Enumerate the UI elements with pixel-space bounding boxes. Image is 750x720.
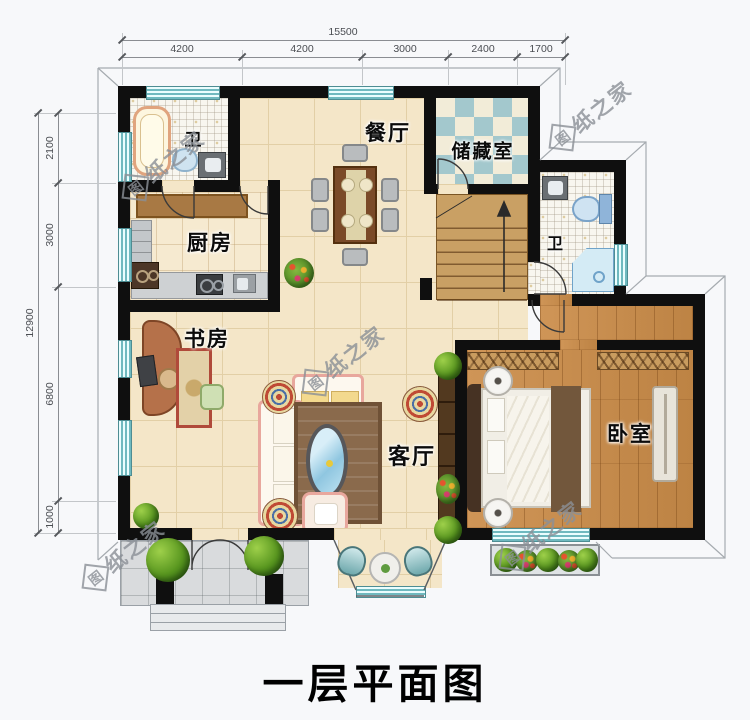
wall <box>228 86 240 192</box>
wall <box>455 340 560 350</box>
dining-chair <box>311 208 329 232</box>
dining-chair <box>342 248 368 266</box>
bench <box>652 386 678 482</box>
toilet2-tank <box>599 194 612 224</box>
sink-icon <box>233 274 256 293</box>
wall <box>693 294 705 540</box>
wall <box>420 278 432 300</box>
porch-pillar <box>265 574 283 604</box>
room-label-bedroom: 卧室 <box>607 418 653 448</box>
wall <box>268 180 280 312</box>
watermark-badge-icon: 图 <box>498 543 526 571</box>
tv-cabinet <box>438 376 456 530</box>
window <box>118 420 132 476</box>
window <box>118 228 132 282</box>
window <box>146 86 220 100</box>
porch-bush <box>244 536 284 576</box>
round-mat <box>262 380 296 414</box>
dim-total-width: 15500 <box>328 26 357 38</box>
wall <box>572 294 705 306</box>
floor-plan-page: 15500 4200 4200 3000 2400 1700 12900 210… <box>0 0 750 720</box>
room-label-storage: 储藏室 <box>451 137 514 164</box>
stair-treads <box>437 221 527 301</box>
study-stool <box>200 384 224 410</box>
porch-steps <box>150 604 286 631</box>
wall <box>424 86 436 194</box>
washbasin1-icon <box>198 152 226 178</box>
page-title: 一层平面图 <box>0 650 750 710</box>
room-label-kitchen: 厨房 <box>187 227 233 257</box>
plant-tv-bottom <box>434 516 462 544</box>
side-table-round <box>402 386 438 422</box>
wall <box>424 184 438 194</box>
room-label-bath2: 卫 <box>547 230 565 254</box>
washbasin2-icon <box>542 176 568 200</box>
bed <box>481 388 591 508</box>
toilet2-icon <box>572 196 600 222</box>
dim-total-height: 12900 <box>24 308 36 337</box>
stairs <box>436 194 528 300</box>
coffee-table <box>306 424 348 498</box>
wall <box>118 300 280 312</box>
plant-tv-top <box>434 352 462 380</box>
plant-tv-mid <box>436 474 460 504</box>
wall <box>588 528 705 540</box>
wardrobe <box>597 352 689 370</box>
stove-icon <box>196 274 223 295</box>
wardrobe <box>467 352 559 370</box>
bed-headboard <box>467 384 481 512</box>
dining-table <box>333 166 377 244</box>
wall <box>614 160 626 244</box>
kitchen-counter-top <box>136 194 248 218</box>
dining-chair <box>381 208 399 232</box>
room-label-study: 书房 <box>184 323 230 353</box>
watermark: 图 纸之家 <box>543 73 638 156</box>
wall <box>528 86 540 262</box>
wall <box>194 180 240 192</box>
bay-window-glass <box>356 586 426 598</box>
dining-chair <box>381 178 399 202</box>
watermark-badge-icon: 图 <box>81 563 109 591</box>
range-cooker-icon <box>131 262 159 289</box>
bay-table <box>369 552 401 584</box>
pillow <box>487 440 505 474</box>
watermark-badge-icon: 图 <box>548 123 576 151</box>
kitchen-cabinet-left <box>131 220 152 264</box>
wall <box>597 340 693 350</box>
window <box>328 86 394 100</box>
pillow <box>487 398 505 432</box>
nightstand-lamp <box>483 366 513 396</box>
wall <box>528 294 540 306</box>
window <box>118 340 132 378</box>
nightstand-lamp <box>483 498 513 528</box>
bed-runner <box>551 386 581 512</box>
dining-chair <box>311 178 329 202</box>
room-label-dining: 餐厅 <box>365 117 411 147</box>
watermark-badge-icon: 图 <box>121 173 149 201</box>
window <box>614 244 628 286</box>
watermark-badge-icon: 图 <box>301 368 329 396</box>
room-label-living: 客厅 <box>388 439 436 471</box>
corridor-floor <box>540 306 695 340</box>
plant-dining <box>284 258 314 288</box>
